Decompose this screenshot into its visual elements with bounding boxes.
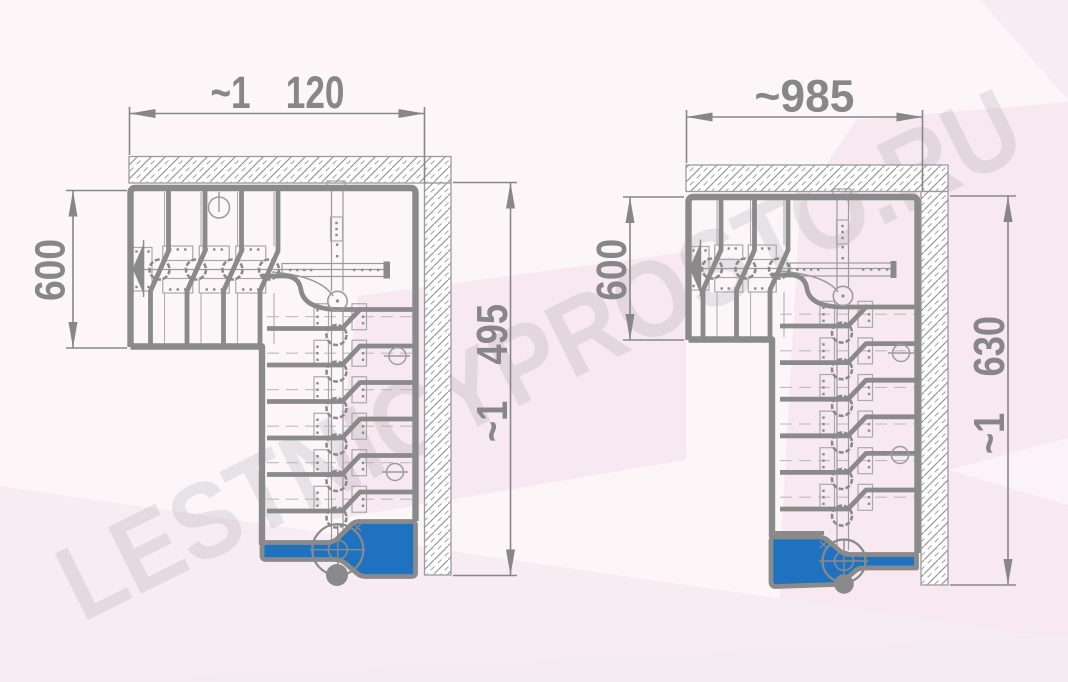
svg-text:~1 495: ~1 495 xyxy=(468,304,517,442)
svg-text:600: 600 xyxy=(588,239,636,301)
svg-text:~985: ~985 xyxy=(755,71,855,122)
svg-text:~1 120: ~1 120 xyxy=(211,67,345,118)
svg-text:~1 630: ~1 630 xyxy=(965,316,1014,454)
svg-text:600: 600 xyxy=(27,239,75,301)
